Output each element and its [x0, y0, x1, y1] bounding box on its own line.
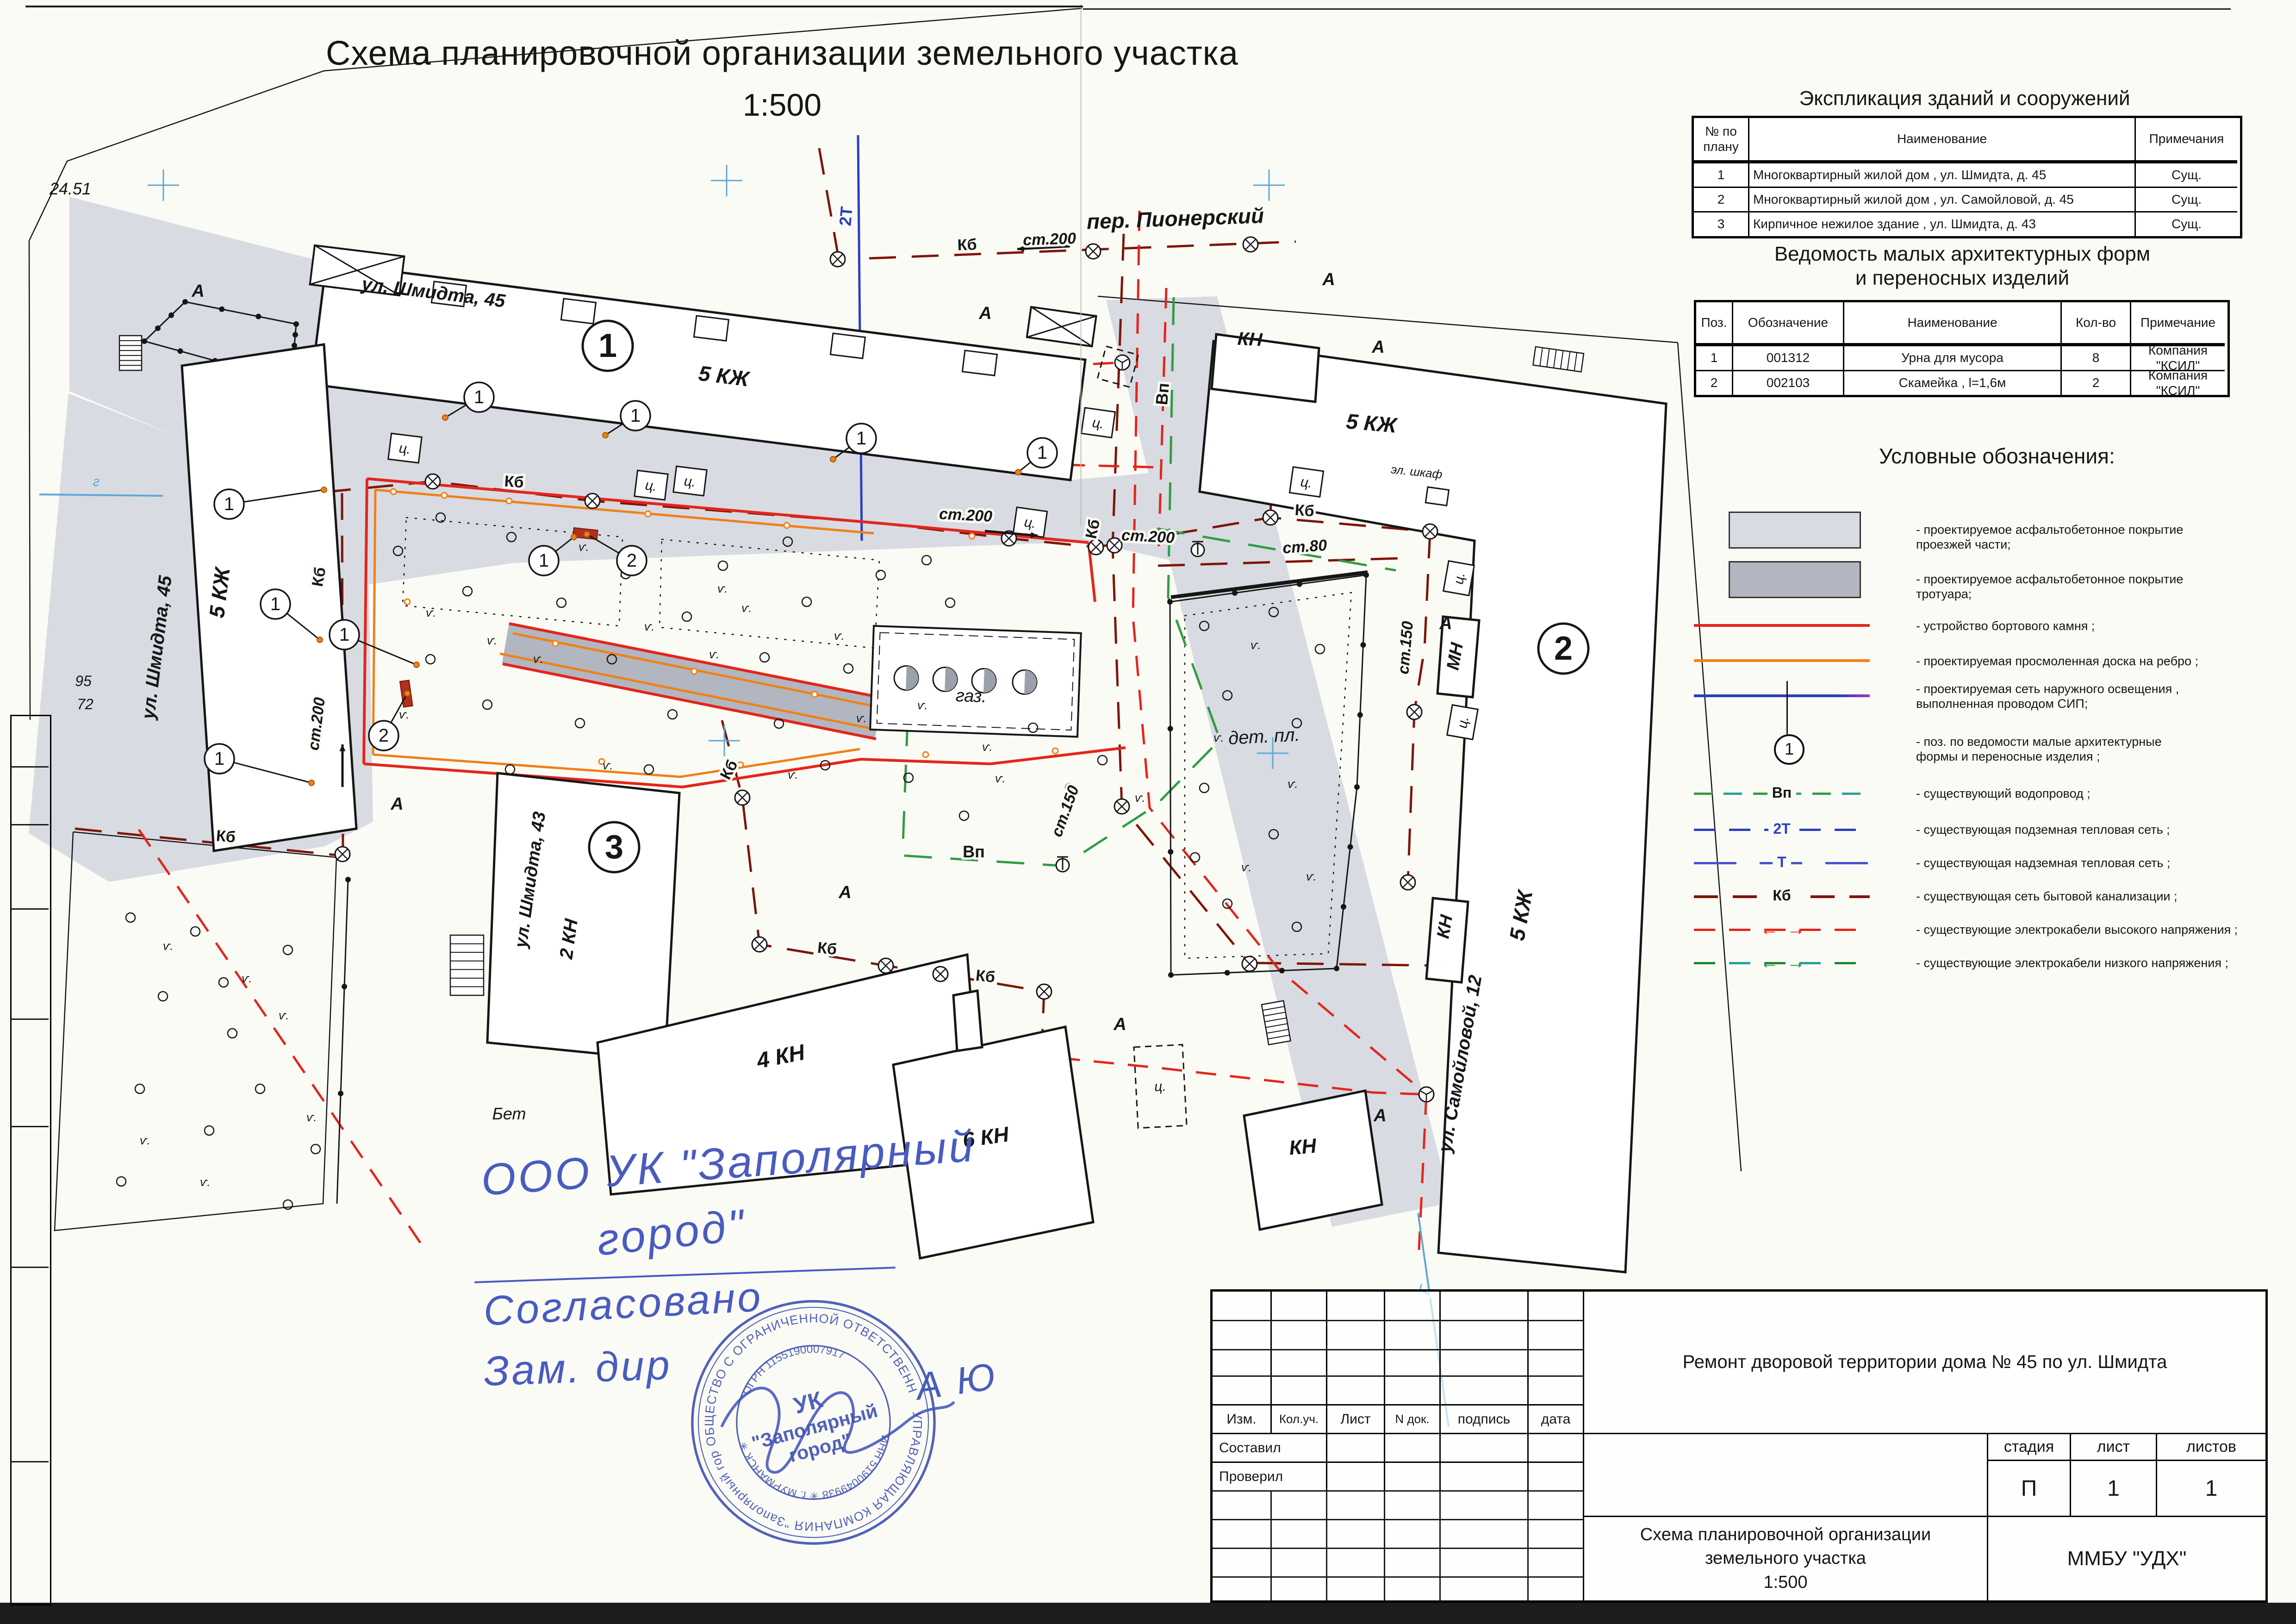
shrub-symbol: ѵ. [1251, 638, 1261, 652]
shrub-symbol: ѵ. [717, 581, 728, 595]
stairs-symbol [450, 935, 484, 995]
table-cell: 002103 [1733, 370, 1844, 395]
svg-text:1: 1 [539, 550, 549, 571]
map-label: КН [1237, 329, 1263, 350]
building-number-marker: 3 [589, 822, 639, 872]
building-outline [953, 991, 982, 1051]
fence-dot [182, 299, 188, 305]
manhole-symbol [1107, 538, 1122, 553]
fence-line [337, 880, 348, 1204]
svg-text:1: 1 [270, 594, 280, 614]
legend-line-hv: ← → [1694, 929, 1870, 931]
table-cell: 2 [1694, 187, 1749, 211]
shrub-symbol: ѵ. [788, 768, 798, 781]
fence-dot [1354, 784, 1360, 790]
svg-text:ц.: ц. [1154, 1079, 1166, 1094]
tree-symbol [426, 655, 435, 664]
building-balcony [561, 299, 596, 324]
table-cell: 2 [1696, 370, 1733, 395]
tb-doc-title: Схема планировочной организации земельно… [1583, 1516, 1987, 1600]
tb-line [1439, 1490, 1441, 1600]
map-label: дет. пл. [1228, 725, 1300, 749]
map-label: ст.150 [1394, 620, 1417, 675]
tree-symbol [283, 1200, 292, 1209]
tb-header-list: Лист [1326, 1404, 1384, 1433]
map-label: КН [1433, 913, 1456, 940]
frame-top-left [25, 6, 1083, 7]
tree-symbol [1200, 783, 1209, 793]
sheet-bottom-edge [0, 1603, 2296, 1624]
legend-line-label: Вп [1767, 784, 1796, 801]
map-label: А [1113, 1015, 1126, 1034]
svg-text:1: 1 [224, 494, 234, 514]
tree-symbol [644, 765, 653, 774]
map-label: 5 КЖ [1345, 409, 1399, 437]
tb-doc-line1: Схема планировочной организации [1640, 1523, 1931, 1547]
tb-cell [1270, 1292, 1326, 1404]
shrub-symbol: ѵ. [709, 647, 720, 661]
tb-signatures-zone [1583, 1433, 1987, 1516]
fence-dot [142, 338, 147, 344]
svg-text:ц.: ц. [644, 478, 658, 494]
map-label: А [1371, 337, 1384, 357]
legend-hv-arrows: ← → [1694, 919, 1870, 940]
legend-line-sip [1694, 694, 1870, 697]
entrance-box: ц. [1013, 507, 1047, 537]
board-node [969, 533, 975, 539]
manhole-symbol [425, 474, 440, 489]
fence-dot [1168, 726, 1173, 731]
shrub-symbol: ѵ. [856, 711, 867, 725]
tree-symbol [1190, 853, 1200, 862]
utility-line-rd [364, 759, 990, 787]
map-label: А [191, 281, 204, 301]
utility-line-or [373, 749, 860, 777]
fence-dot [345, 877, 351, 882]
tb-header-koluch: Кол.уч. [1270, 1404, 1326, 1433]
board-node [391, 489, 396, 494]
entrance-box: ц. [1289, 467, 1323, 497]
shrub-symbol: ѵ. [603, 758, 613, 772]
tree-symbol [311, 1144, 320, 1154]
entrance-box: ц. [635, 470, 668, 500]
legend-item-text: - поз. по ведомости малые архитектурные [1916, 735, 2162, 749]
tb-line [1213, 1349, 1583, 1350]
board-node [553, 641, 558, 646]
manhole-symbol [1037, 984, 1052, 999]
building-balcony [694, 316, 728, 341]
margin-divider [10, 908, 49, 910]
tree-symbol [760, 653, 769, 662]
fence-dot [1168, 849, 1173, 855]
fence-dot [178, 348, 183, 354]
svg-text:1: 1 [630, 406, 641, 426]
map-label: Кб [1294, 501, 1315, 520]
margin-divider [10, 1126, 49, 1127]
legend-item-text: - существующие электрокабели низкого нап… [1916, 956, 2228, 970]
svg-text:1: 1 [856, 428, 866, 449]
tb-cell [1439, 1433, 1527, 1462]
map-label: А [390, 794, 403, 814]
table-cell: 8 [2062, 345, 2131, 370]
shrub-symbol: ѵ. [644, 619, 655, 633]
map-label: газ. [955, 686, 987, 706]
board-node [923, 752, 928, 757]
shrub-symbol: ѵ. [741, 601, 752, 615]
map-label: Кб [975, 967, 996, 986]
table-cell: 001312 [1733, 345, 1844, 370]
tree-symbol [802, 597, 811, 606]
legend-item-text: - проектируемое асфальтобетонное покрыти… [1916, 572, 2183, 586]
tb-doc-line3: 1:500 [1763, 1571, 1807, 1594]
tree-symbol [205, 1126, 214, 1135]
legend-item-text2: тротуара; [1916, 587, 1972, 601]
tb-sheets-label: листов [2156, 1433, 2265, 1460]
hydrant-symbol [1056, 857, 1069, 872]
tree-symbol [844, 664, 853, 673]
tb-project-name: Ремонт дворовой территории дома № 45 по … [1583, 1292, 2265, 1433]
board-node [812, 692, 817, 697]
map-label: ст.200 [1121, 526, 1175, 547]
column-header: Поз. [1696, 302, 1733, 345]
map-label: А [838, 883, 851, 902]
legend-item-text: - проектируемая просмоленная доска на ре… [1916, 654, 2198, 668]
svg-text:1: 1 [598, 327, 617, 364]
map-label: Вп [1152, 382, 1173, 406]
map-label: КН [1288, 1134, 1318, 1159]
tree-symbol [463, 587, 472, 596]
map-label: А [1439, 614, 1452, 633]
shrub-symbol: ѵ. [1213, 731, 1224, 744]
grid-cross [1253, 169, 1285, 201]
tb-stage-label: стадия [1987, 1433, 2070, 1460]
title-block: Изм. Кол.уч. Лист N док. подпись дата Со… [1210, 1289, 2268, 1603]
fence-dot [1168, 972, 1174, 978]
board-node [784, 523, 790, 528]
column-header: № по плану [1694, 118, 1749, 162]
fence-dot [1341, 904, 1346, 910]
building-outline [1426, 898, 1468, 982]
column-header: Наименование [1749, 118, 2136, 162]
table-cell: Скамейка , l=1,6м [1844, 370, 2062, 395]
margin-divider [10, 824, 49, 825]
legend-item-text2: выполненная проводом СИП; [1916, 697, 2088, 711]
manhole-symbol [1086, 244, 1101, 259]
shrub-symbol: ѵ. [1241, 860, 1252, 874]
legend-item-text: - существующая надземная тепловая сеть ; [1916, 856, 2171, 870]
tb-line [1213, 1375, 1583, 1377]
tb-sheet-label: лист [2070, 1433, 2156, 1460]
utility-line-kb [819, 148, 839, 258]
tb-organization: ММБУ "УДХ" [1987, 1516, 2265, 1600]
shrub-symbol: ѵ. [279, 1008, 289, 1022]
entrance-box: ц. [388, 433, 422, 463]
legend-line-curb [1694, 624, 1870, 627]
map-label: 95 [75, 673, 92, 689]
fence-dot [255, 314, 261, 319]
tb-line [1384, 1490, 1385, 1600]
grid-cross [148, 169, 179, 201]
stairs-symbol [119, 336, 142, 370]
fence-dot [1167, 599, 1173, 605]
tb-cell [1326, 1292, 1384, 1404]
fence-dot [155, 325, 161, 331]
manhole-symbol [1114, 799, 1129, 814]
map-label: А [1373, 1106, 1386, 1125]
tree-symbol [228, 1029, 237, 1038]
tb-cell [1384, 1433, 1439, 1462]
map-label: 24.51 [49, 179, 91, 198]
fence-dot [1360, 642, 1366, 648]
svg-text:2: 2 [379, 725, 389, 746]
svg-text:ц.: ц. [1300, 474, 1313, 491]
fence-dot [1334, 966, 1339, 971]
svg-text:1: 1 [339, 625, 349, 645]
entrance-box: ц. [1444, 561, 1475, 596]
tree-symbol [191, 927, 200, 936]
svg-text:2: 2 [627, 550, 637, 571]
tb-cell [1439, 1292, 1527, 1404]
shrub-symbol: ѵ. [140, 1133, 150, 1147]
ramp-symbol [1027, 307, 1096, 346]
shrub-symbol: ѵ. [399, 707, 410, 721]
pos-marker-circle: 1 [1774, 734, 1804, 765]
tb-row-checked: Проверил [1213, 1462, 1326, 1490]
maf-title-line1: Ведомость малых архитектурных форм [1685, 243, 2240, 266]
fence-dot [1279, 968, 1285, 974]
entrance-box: ц. [1081, 408, 1115, 438]
map-label: Бет [492, 1104, 526, 1123]
map-label: ст.200 [939, 505, 993, 525]
tb-cell [1384, 1292, 1439, 1404]
electric-cabinet [1425, 487, 1449, 506]
manhole-symbol [585, 493, 600, 508]
tb-cell [1439, 1462, 1527, 1490]
margin-divider [10, 766, 49, 768]
shrub-symbol: ѵ. [242, 971, 252, 985]
tb-row-compiled: Составил [1213, 1433, 1326, 1462]
tb-line [1270, 1490, 1272, 1600]
tree-symbol [876, 570, 885, 580]
parcel-boundary [55, 832, 336, 1230]
svg-text:1: 1 [474, 387, 484, 407]
legend-item-text: - существующий водопровод ; [1916, 786, 2091, 801]
building-balcony [962, 350, 997, 375]
shrub-symbol: ѵ. [995, 771, 1006, 785]
tb-cell [1527, 1462, 1583, 1490]
map-label: Вп [963, 842, 985, 861]
table-cell: Кирпичное нежилое здание , ул. Шмидта, д… [1749, 211, 2136, 236]
margin-divider [10, 1461, 49, 1462]
utility-line-kb [869, 242, 1296, 258]
legend-item-text: - существующая подземная тепловая сеть ; [1916, 822, 2170, 837]
tree-symbol [126, 913, 135, 922]
board-node [645, 511, 651, 517]
tb-line [1527, 1490, 1529, 1600]
tree-symbol [158, 992, 168, 1001]
map-label: А [978, 304, 991, 323]
frame-top-right [1083, 8, 2231, 10]
svg-text:ц.: ц. [1023, 514, 1037, 531]
maf-title-line2: и переносных изделий [1685, 267, 2240, 290]
map-label: А [1322, 270, 1335, 289]
map-label: г [93, 474, 100, 489]
tree-symbol [505, 765, 515, 774]
shrub-symbol: ѵ. [200, 1175, 211, 1189]
legend-item-text: - проектируемое асфальтобетонное покрыти… [1916, 523, 2183, 537]
tb-cell [1527, 1292, 1583, 1404]
map-label: Кб [309, 566, 330, 588]
manhole-symbol [335, 847, 350, 862]
legend-line-t: Т [1694, 862, 1870, 864]
scan-seam [1080, 4, 1082, 527]
map-label: ст.150 [1048, 783, 1083, 839]
tree-symbol [1098, 756, 1107, 765]
map-label: Кб [215, 827, 236, 846]
tree-symbol [946, 598, 955, 607]
table-cell: 3 [1694, 211, 1749, 236]
legend-item-text2: проезжей части; [1916, 537, 2011, 551]
pos-marker-stick [1786, 681, 1788, 734]
shrub-symbol: ѵ. [1288, 777, 1298, 791]
table-cell: Сущ. [2136, 162, 2237, 187]
margin-strip [10, 715, 51, 1605]
table-cell: 1 [1694, 162, 1749, 187]
tree-symbol [219, 978, 228, 987]
legend-line-label: Т [1773, 854, 1791, 870]
tb-header-ndok: N док. [1384, 1404, 1439, 1433]
dashed-box: ц. [1134, 1045, 1187, 1128]
tb-line [1213, 1320, 1583, 1321]
tree-symbol [283, 945, 292, 955]
column-header: Примечание [2131, 302, 2225, 345]
legend-line-vp: Вп [1694, 793, 1870, 795]
legend-item-text2: формы и переносные изделия ; [1916, 750, 2100, 763]
tb-cell [1527, 1433, 1583, 1462]
explication-table: № по плану Наименование Примечания 1 Мно… [1692, 116, 2242, 238]
map-label: Кб [957, 236, 977, 254]
manhole-symbol [1242, 956, 1257, 971]
fence-dot [168, 312, 174, 318]
grid-cross [711, 165, 742, 196]
tree-symbol [959, 811, 969, 820]
page-title: Схема планировочной организации земельно… [199, 33, 1365, 73]
tree-symbol [117, 1177, 126, 1186]
legend-item-text: - существующие электрокабели высокого на… [1916, 922, 2238, 937]
fence-dot [1347, 844, 1353, 849]
table-cell: Многоквартирный жилой дом , ул. Шмидта, … [1749, 162, 2136, 187]
legend-title: Условные обозначения: [1879, 443, 2115, 468]
stairs-symbol [1533, 347, 1584, 372]
gas-tanks-enclosure [870, 626, 1081, 737]
legend-swatch-road [1729, 512, 1861, 549]
legend-item-text: - устройство бортового камня ; [1916, 618, 2095, 633]
board-node [404, 599, 410, 605]
column-header: Примечания [2136, 118, 2237, 162]
legend-item-text: - существующая сеть бытовой канализации … [1916, 889, 2178, 904]
manhole-symbol [1089, 540, 1103, 555]
shrub-symbol: ѵ. [306, 1110, 317, 1124]
map-label: Кб [504, 473, 524, 492]
building-number-marker: 2 [1538, 624, 1588, 674]
tb-sheet-value: 1 [2070, 1460, 2156, 1516]
fence-dot [338, 1091, 343, 1096]
map-label: ст.200 [1023, 230, 1076, 249]
legend-pos-sample: 1 [1685, 734, 1860, 762]
shrub-symbol: ѵ. [426, 606, 436, 619]
shrub-symbol: ѵ. [579, 540, 589, 554]
table-cell: Многоквартирный жилой дом , ул. Самойлов… [1749, 187, 2136, 211]
building-outline [1244, 1091, 1382, 1230]
board-node [506, 498, 512, 504]
legend-line-board [1694, 659, 1870, 662]
tree-symbol [718, 561, 728, 570]
tb-cell [1213, 1292, 1270, 1404]
tree-symbol [682, 612, 691, 621]
svg-text:2: 2 [1554, 630, 1573, 667]
legend-line-label: 2Т [1768, 820, 1795, 837]
tb-header-izm: Изм. [1213, 1404, 1270, 1433]
svg-text:1: 1 [1037, 443, 1047, 463]
manhole-symbol [878, 958, 893, 973]
legend-line-2t: 2Т [1694, 829, 1870, 831]
shrub-symbol: ѵ. [917, 698, 928, 712]
column-header: Кол-во [2062, 302, 2131, 345]
legend-swatch-walk [1729, 561, 1861, 598]
tree-symbol [255, 1084, 265, 1093]
margin-divider [10, 1267, 49, 1268]
table-cell: Сущ. [2136, 211, 2237, 236]
tb-stage-value: П [1987, 1460, 2070, 1516]
tb-cell [1326, 1462, 1384, 1490]
table-cell: Урна для мусора [1844, 345, 2062, 370]
svg-text:1: 1 [214, 749, 224, 769]
drawing-sheet: ц.ц.ц.ц.ц.ц.ц.ц.ц.ѵ.ѵ.ѵ.ѵ.ѵ.ѵ.ѵ.ѵ.ѵ.ѵ.ѵ.… [0, 0, 2296, 1624]
explication-title: Экспликация зданий и сооружений [1692, 87, 2238, 110]
tb-cell [1384, 1462, 1439, 1490]
legend-line-lv: ← → [1694, 962, 1870, 964]
map-label: 2Т [835, 206, 856, 226]
lamp-symbol [1115, 355, 1130, 370]
grid-cross [709, 725, 740, 756]
tree-symbol [668, 710, 677, 719]
legend: Условные обозначения: - проектируемое ас… [1685, 435, 2286, 1000]
fence-dot [1225, 970, 1230, 975]
tree-symbol [1315, 644, 1325, 654]
building-number-marker: 1 [583, 321, 633, 371]
manhole-symbol [1423, 524, 1437, 539]
board-node [691, 668, 697, 674]
tb-doc-line2: земельного участка [1705, 1547, 1866, 1570]
board-node [442, 493, 447, 498]
manhole-symbol [1407, 705, 1422, 719]
fence-dot [292, 343, 297, 348]
map-label: 72 [77, 696, 93, 712]
shrub-symbol: ѵ. [487, 633, 498, 647]
tree-symbol [135, 1084, 144, 1093]
shrub-symbol: ѵ. [834, 629, 845, 643]
manhole-symbol [1263, 510, 1278, 525]
manhole-symbol [752, 937, 767, 952]
entrance-box: ц. [1447, 705, 1478, 740]
shrub-symbol: ѵ. [1306, 869, 1317, 883]
svg-text:ц.: ц. [1091, 415, 1105, 431]
tree-symbol [575, 718, 585, 728]
fence-dot [293, 321, 299, 327]
column-header: Обозначение [1733, 302, 1844, 345]
map-label: пер. Пионерский [1086, 203, 1264, 233]
legend-lv-arrows: ← → [1694, 952, 1870, 973]
